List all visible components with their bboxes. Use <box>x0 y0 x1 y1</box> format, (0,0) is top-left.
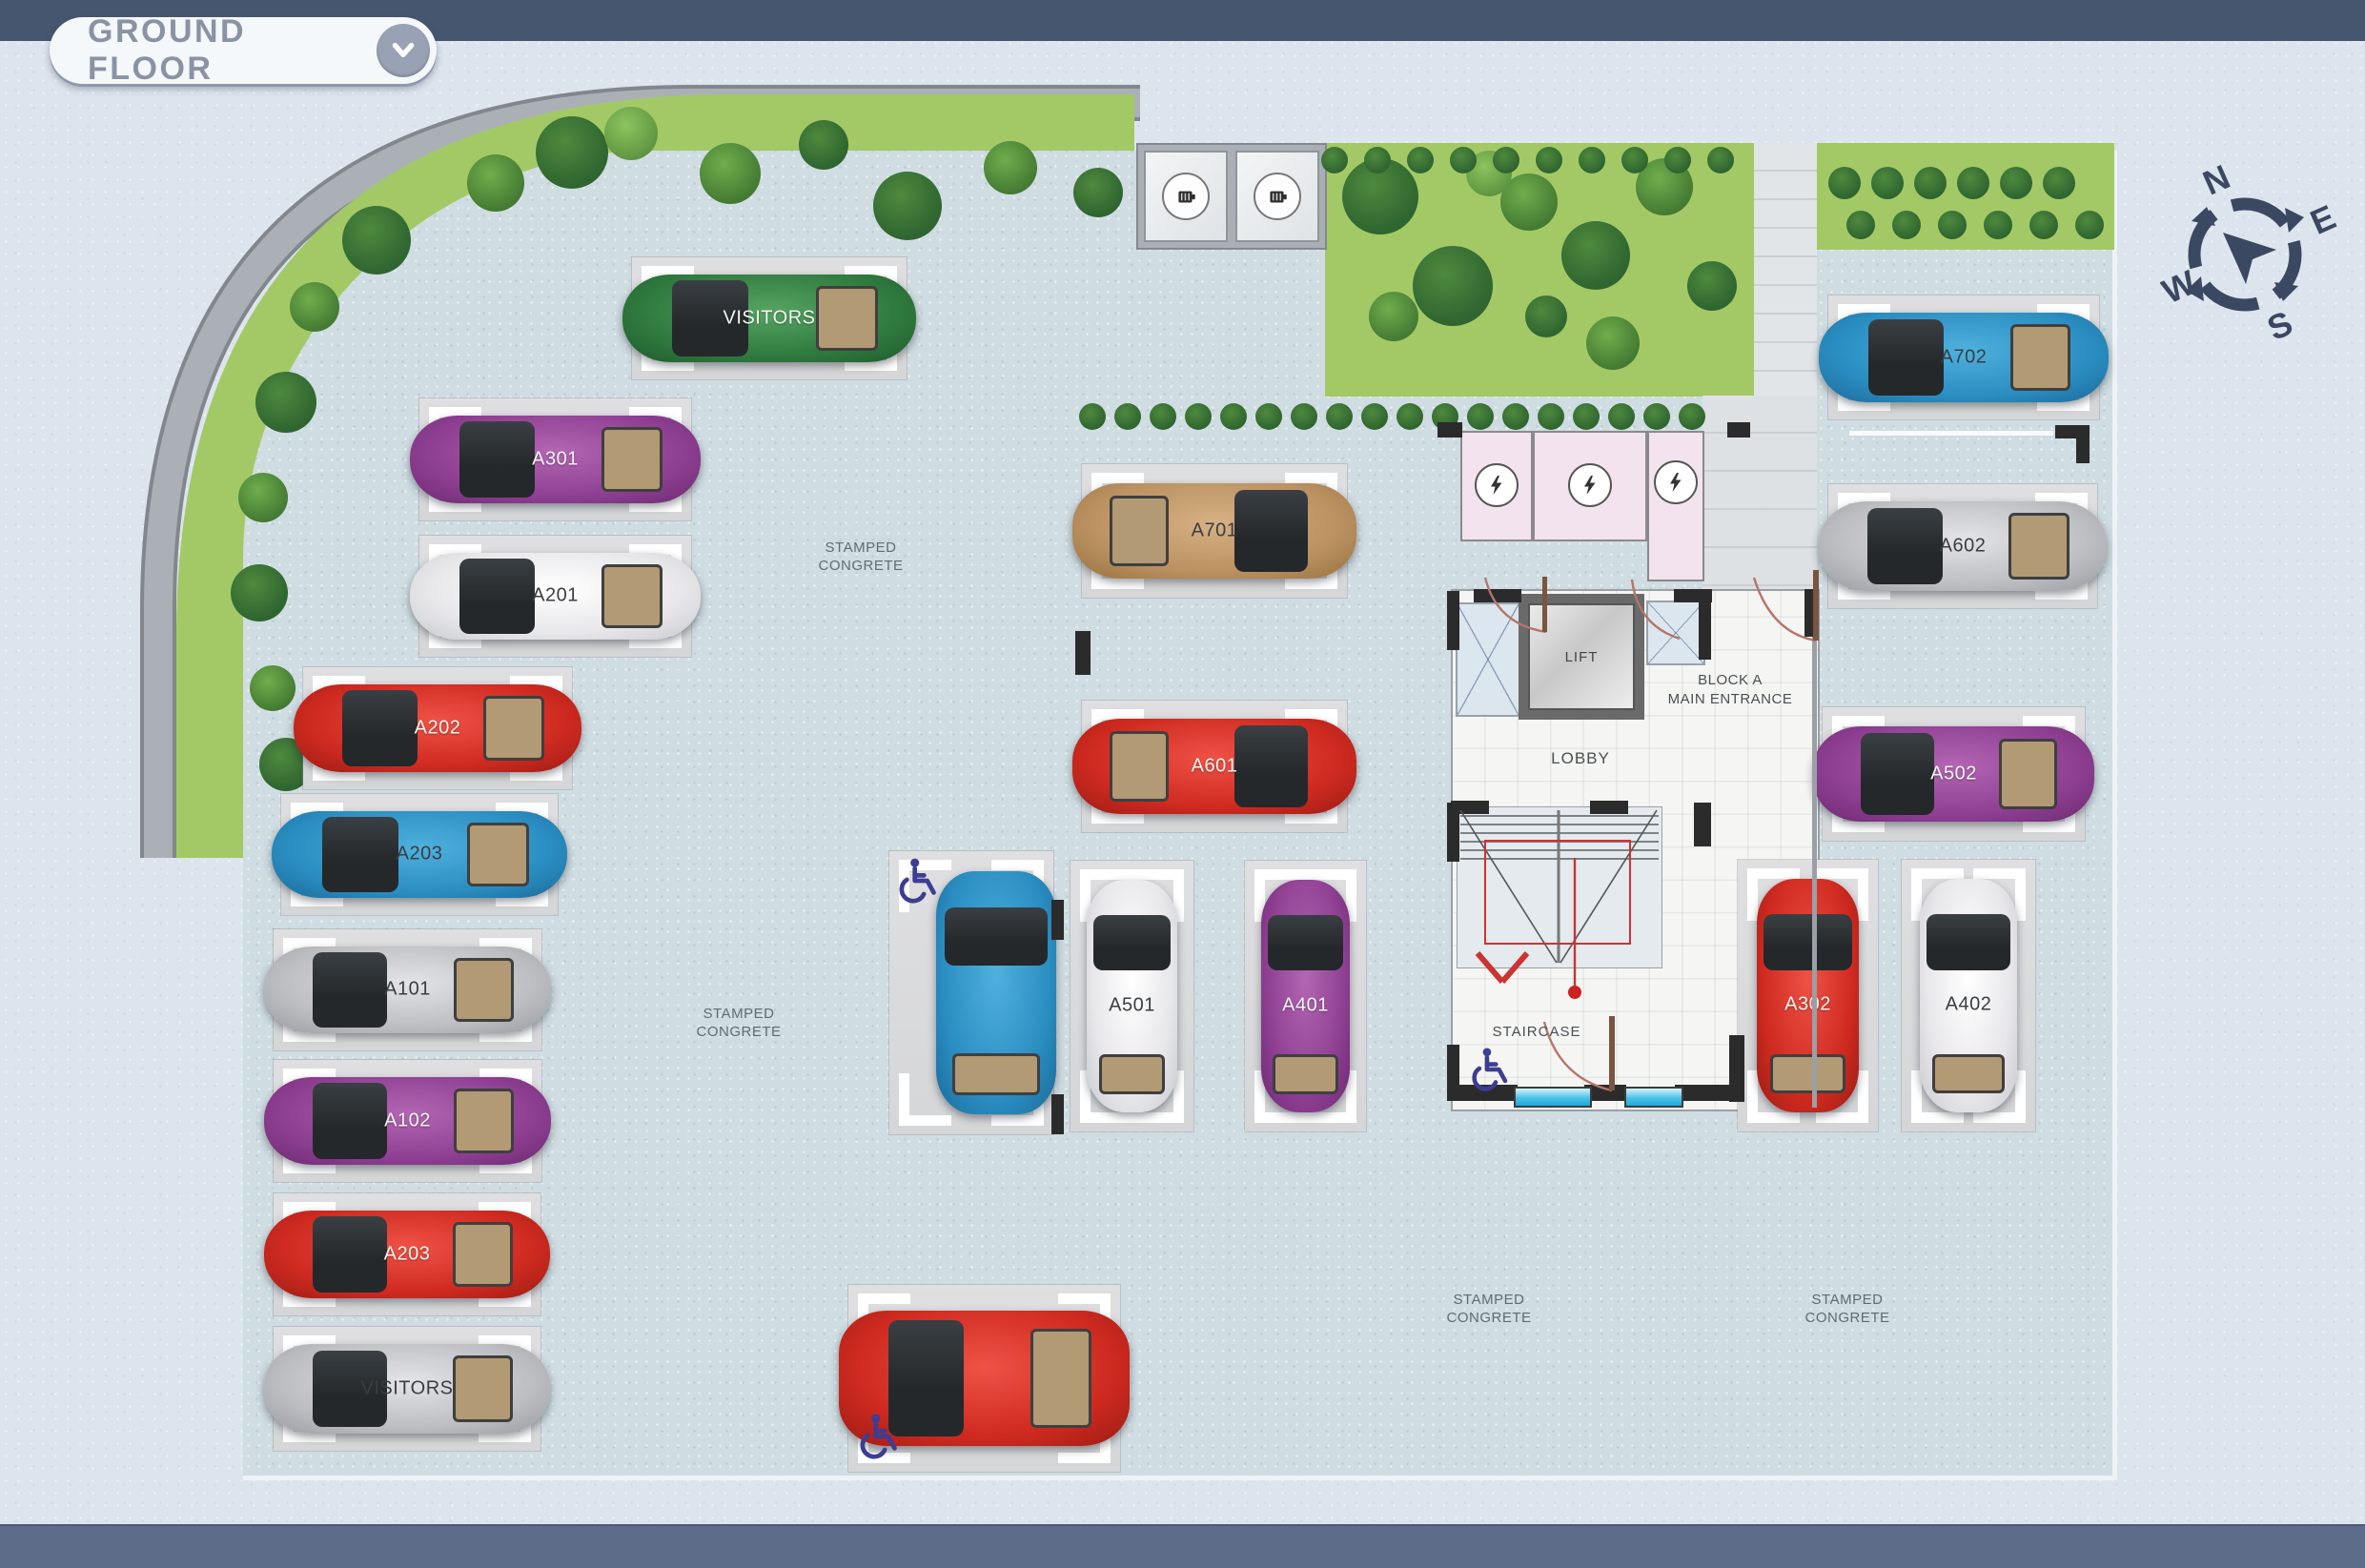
tree <box>1413 246 1493 326</box>
bush <box>1407 147 1434 173</box>
car-rear-window <box>453 1222 513 1287</box>
bush <box>1621 147 1648 173</box>
car-windshield <box>342 690 417 765</box>
car-top-view-a101: A101 <box>264 947 551 1033</box>
spot-label: A402 <box>1946 994 1992 1016</box>
tree <box>1073 168 1123 217</box>
spot-label: A501 <box>1109 994 1155 1016</box>
surface-label: STAMPED CONGRETE <box>818 540 903 576</box>
tree <box>1525 295 1567 337</box>
bush <box>1079 403 1106 430</box>
parking-spot-a501[interactable]: A501 <box>1070 861 1193 1131</box>
parking-spot-a203-upper[interactable]: A203 <box>281 794 558 915</box>
bush <box>1291 403 1317 430</box>
parking-spot-visitors-top[interactable]: VISITORS <box>632 257 907 379</box>
spot-label: A602 <box>1940 535 1987 557</box>
car-top-view-a102: A102 <box>264 1077 551 1165</box>
spot-label: VISITORS <box>724 307 816 329</box>
parking-spot-a402[interactable]: A402 <box>1902 860 2035 1131</box>
bush <box>1664 147 1691 173</box>
car-rear-window <box>816 286 878 351</box>
car-top-view-a203-upper: A203 <box>272 811 567 898</box>
spot-label: A101 <box>384 979 431 1001</box>
wall-segment <box>1051 1094 1064 1134</box>
spot-label: VISITORS <box>361 1377 454 1399</box>
car-top-view-visitors-top: VISITORS <box>622 275 916 362</box>
spot-label: A201 <box>532 585 579 607</box>
parking-spot-visitors-bottom[interactable]: VISITORS <box>274 1327 540 1451</box>
wheelchair-icon <box>895 855 947 911</box>
car-top-view-a702: A702 <box>1819 313 2109 402</box>
car-rear-window <box>1110 496 1169 567</box>
bush <box>1914 167 1947 199</box>
tree <box>255 372 316 433</box>
bush <box>1846 211 1875 239</box>
tree <box>1687 261 1737 311</box>
spot-label: A702 <box>1941 346 1988 368</box>
surface-label: STAMPED CONGRETE <box>1446 1292 1531 1328</box>
car-rear-window <box>453 1355 513 1421</box>
car-windshield <box>313 952 387 1028</box>
tree <box>342 206 411 275</box>
svg-text:S: S <box>2261 303 2298 343</box>
svg-text:N: N <box>2197 157 2235 203</box>
tree <box>238 473 288 522</box>
parking-spot-a202[interactable]: A202 <box>303 667 572 789</box>
svg-text:W: W <box>2160 262 2202 311</box>
car-top-view-a402: A402 <box>1920 879 2017 1112</box>
bush <box>1220 403 1247 430</box>
car-windshield <box>1093 915 1171 971</box>
parking-spot-a702[interactable]: A702 <box>1828 295 2099 419</box>
entrance-label-line1: BLOCK A <box>1640 671 1821 690</box>
car-top-view-a701: A701 <box>1072 483 1356 580</box>
bush <box>1493 147 1519 173</box>
staircase-label: STAIRCASE <box>1460 1024 1613 1040</box>
car-top-view-a601: A601 <box>1072 719 1356 813</box>
chevron-down-icon[interactable] <box>377 24 430 77</box>
bush <box>2075 211 2104 239</box>
waste-bin-icon <box>1254 173 1301 220</box>
spot-label: A502 <box>1930 763 1977 784</box>
car-windshield <box>1234 490 1308 573</box>
car-top-view-a301: A301 <box>410 416 701 503</box>
parking-spot-a701[interactable]: A701 <box>1082 464 1347 598</box>
surface-label: STAMPED CONGRETE <box>696 1006 781 1042</box>
compass-rose-icon: N E S W <box>2160 153 2351 343</box>
bush <box>1957 167 1989 199</box>
car-windshield <box>322 817 399 892</box>
wheelchair-icon <box>856 1411 907 1467</box>
car-windshield <box>459 559 535 634</box>
car-windshield <box>459 421 535 497</box>
car-windshield <box>1927 914 2010 970</box>
bush <box>1185 403 1212 430</box>
parking-spot-a401[interactable]: A401 <box>1245 861 1366 1131</box>
tree <box>604 107 658 160</box>
bush <box>2000 167 2032 199</box>
bush <box>1828 167 1861 199</box>
bush <box>1114 403 1141 430</box>
car-top-view-a401: A401 <box>1261 880 1350 1112</box>
wall-segment <box>1075 631 1091 675</box>
car-rear-window <box>1273 1054 1338 1094</box>
bush <box>2029 211 2058 239</box>
tree <box>250 665 296 711</box>
car-windshield <box>1868 319 1944 396</box>
utility-pad-area <box>1136 143 1327 250</box>
parking-spot-a601[interactable]: A601 <box>1082 701 1347 832</box>
tree <box>873 172 942 240</box>
parking-spot-a203-lower[interactable]: A203 <box>274 1193 540 1315</box>
car-windshield <box>1861 733 1934 816</box>
tree <box>1369 292 1418 341</box>
spot-label: A203 <box>384 1243 431 1265</box>
car-rear-window <box>1030 1329 1091 1428</box>
car-windshield <box>1234 725 1308 806</box>
plan-linework <box>1430 410 1830 1153</box>
entrance-label-line2: MAIN ENTRANCE <box>1640 690 1821 709</box>
spot-label: A401 <box>1282 994 1329 1016</box>
bush <box>1397 403 1423 430</box>
car-windshield <box>1867 508 1942 584</box>
tree <box>467 154 524 212</box>
bush <box>1892 211 1921 239</box>
bush <box>2043 167 2075 199</box>
parking-spot-a102[interactable]: A102 <box>274 1060 541 1182</box>
bush <box>1255 403 1282 430</box>
tree <box>700 143 761 204</box>
car-rear-window <box>1110 731 1169 802</box>
bush <box>1579 147 1605 173</box>
spot-label: A102 <box>384 1110 431 1131</box>
parking-spot-a101[interactable]: A101 <box>274 929 541 1050</box>
bush <box>1361 403 1388 430</box>
car-windshield <box>1268 915 1344 971</box>
car-top-view-a201: A201 <box>410 553 701 640</box>
spot-label: A203 <box>397 844 443 865</box>
tree <box>536 116 608 189</box>
utility-pad <box>1144 151 1228 242</box>
car-top-view-a203-lower: A203 <box>264 1211 550 1298</box>
utility-pad <box>1235 151 1319 242</box>
car-rear-window <box>1099 1054 1166 1094</box>
bush <box>1326 403 1353 430</box>
bush <box>1364 147 1391 173</box>
car-rear-window <box>454 1089 514 1153</box>
car-rear-window <box>2010 324 2071 390</box>
parking-spot-accessible-blue[interactable] <box>889 851 1053 1134</box>
parking-divider-line <box>1849 431 2053 436</box>
floor-selector[interactable]: GROUND FLOOR <box>50 17 437 84</box>
spot-label: A601 <box>1192 755 1238 777</box>
spot-label: A701 <box>1192 519 1238 541</box>
car-top-view-a602: A602 <box>1819 501 2107 591</box>
parking-spot-a301[interactable]: A301 <box>419 398 691 520</box>
car-top-view-visitors-bottom: VISITORS <box>264 1344 550 1434</box>
bush <box>1938 211 1967 239</box>
bush <box>1450 147 1477 173</box>
wall-segment <box>1051 900 1064 940</box>
tree <box>1561 221 1630 290</box>
bush <box>1536 147 1562 173</box>
car-rear-window <box>601 564 663 629</box>
parking-spot-a602[interactable]: A602 <box>1828 484 2097 608</box>
car-windshield <box>313 1216 387 1292</box>
surface-label: STAMPED CONGRETE <box>1804 1292 1889 1328</box>
parking-spot-a201[interactable]: A201 <box>419 536 691 657</box>
car-rear-window <box>483 696 543 761</box>
car-rear-window <box>1932 1054 2005 1094</box>
floor-title: GROUND FLOOR <box>50 13 377 88</box>
parking-spot-a502[interactable]: A502 <box>1823 707 2085 841</box>
spot-label: A301 <box>532 448 579 470</box>
spot-label: A202 <box>415 717 461 739</box>
waste-bin-icon <box>1162 173 1210 220</box>
tree <box>231 564 288 621</box>
tree <box>290 282 339 332</box>
wall-segment <box>2076 425 2090 463</box>
car-top-view-a501: A501 <box>1087 880 1176 1112</box>
car-rear-window <box>601 427 663 492</box>
lobby-label: LOBBY <box>1523 749 1638 768</box>
car-rear-window <box>454 958 514 1023</box>
wheelchair-icon <box>1468 1045 1518 1099</box>
main-entrance-label: BLOCK A MAIN ENTRANCE <box>1640 671 1821 710</box>
bush <box>1321 147 1348 173</box>
car-rear-window <box>467 823 529 887</box>
bush <box>1871 167 1904 199</box>
bush <box>1150 403 1176 430</box>
bush <box>1707 147 1734 173</box>
tree <box>799 120 848 170</box>
car-top-view-a502: A502 <box>1813 726 2093 823</box>
car-rear-window <box>952 1053 1041 1094</box>
tree <box>1586 316 1640 370</box>
car-windshield <box>313 1083 387 1158</box>
car-top-view-a202: A202 <box>294 684 581 772</box>
car-top-view-accessible-blue <box>936 871 1056 1114</box>
tree <box>984 141 1037 194</box>
car-windshield <box>945 907 1048 966</box>
parking-spot-accessible-red[interactable] <box>848 1285 1120 1472</box>
car-rear-window <box>2008 513 2069 579</box>
bush <box>1984 211 2012 239</box>
svg-text:E: E <box>2304 197 2341 242</box>
car-rear-window <box>1999 739 2058 810</box>
